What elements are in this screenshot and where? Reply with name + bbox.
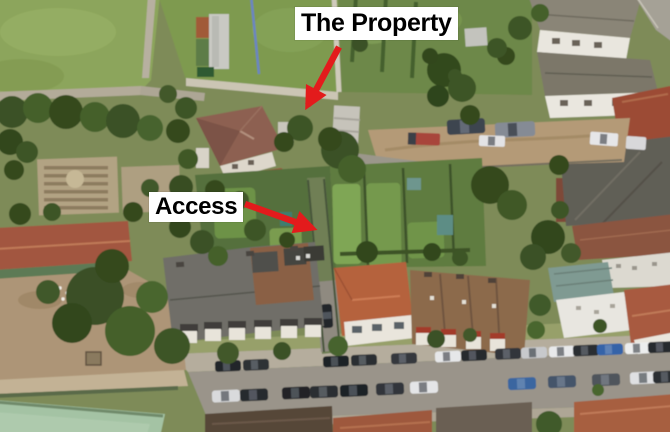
tree <box>105 306 155 356</box>
tree <box>49 95 83 129</box>
tree <box>4 160 24 180</box>
parked-car <box>391 352 417 364</box>
bay-front <box>304 318 322 337</box>
tree <box>16 141 38 163</box>
tree <box>531 4 549 22</box>
tree <box>460 105 480 125</box>
tree <box>175 97 197 119</box>
parked-car <box>625 342 651 354</box>
tree <box>36 280 60 304</box>
tree <box>279 232 295 248</box>
tree <box>273 342 291 360</box>
tree <box>427 330 445 348</box>
tree <box>328 336 348 356</box>
parked-car <box>282 386 310 399</box>
tree <box>80 102 110 132</box>
tree <box>423 243 441 261</box>
tree <box>427 85 449 107</box>
tree <box>487 38 507 58</box>
tree <box>106 104 140 138</box>
teal-greenhouse <box>437 215 453 235</box>
parked-car <box>376 382 404 395</box>
parked-car <box>648 341 670 353</box>
tree <box>497 190 527 220</box>
garden-shed <box>464 27 487 46</box>
parked-car <box>653 370 670 383</box>
parked-car <box>351 354 377 366</box>
tree <box>52 303 92 343</box>
tree <box>137 115 163 141</box>
tree <box>520 244 546 270</box>
parked-car <box>548 375 576 388</box>
tree <box>448 69 462 83</box>
tree <box>422 48 438 64</box>
tree <box>43 203 61 221</box>
tree <box>592 384 604 396</box>
yard-vehicle <box>495 121 536 138</box>
yard-vehicle <box>590 132 619 147</box>
parked-car <box>521 347 547 359</box>
tree <box>244 219 266 241</box>
bay-front <box>280 319 298 338</box>
parked-car <box>597 343 623 355</box>
bay-front <box>490 333 505 351</box>
tree <box>159 85 177 103</box>
hatch <box>86 352 101 365</box>
tree <box>527 321 545 339</box>
parked-car <box>508 377 536 390</box>
aerial-scene <box>0 0 670 432</box>
terraced-houses-west <box>163 242 325 343</box>
tree <box>463 328 477 342</box>
parked-car <box>410 381 438 394</box>
tree <box>356 241 378 263</box>
aerial-photo <box>0 0 670 432</box>
parked-car <box>549 345 575 357</box>
greenhouse-sheds <box>196 14 229 77</box>
parked-car <box>243 359 269 371</box>
tree <box>508 16 532 40</box>
tree <box>23 93 53 123</box>
tree <box>338 155 366 183</box>
tree <box>551 201 569 219</box>
parked-car <box>495 348 521 360</box>
access-label: Access <box>149 192 243 222</box>
tree <box>318 127 342 151</box>
annotated-aerial-map: The Property Access <box>0 0 670 432</box>
parked-car <box>435 350 461 362</box>
parked-car <box>212 389 240 402</box>
tree <box>136 281 168 313</box>
property-label: The Property <box>295 7 458 40</box>
bay-front <box>254 320 272 339</box>
tree <box>549 155 569 175</box>
tree <box>274 132 294 152</box>
red-roof-house <box>334 262 414 346</box>
tree <box>95 249 129 283</box>
teal-shed <box>407 178 421 190</box>
yard-vehicle <box>479 135 505 147</box>
yard-vehicle <box>408 132 440 145</box>
parked-car <box>323 355 349 367</box>
tree <box>178 149 198 169</box>
tree <box>9 203 31 225</box>
tree <box>529 294 551 316</box>
bay-front <box>228 321 246 340</box>
yard-vehicle <box>626 136 647 150</box>
bay-front <box>204 322 222 341</box>
tree <box>166 119 190 143</box>
parked-car <box>573 344 599 356</box>
tree <box>452 250 468 266</box>
parked-car <box>340 384 368 397</box>
tree <box>217 342 239 364</box>
parked-car <box>240 388 268 401</box>
parked-car <box>461 349 487 361</box>
tree <box>593 319 607 333</box>
tree <box>123 202 143 222</box>
parked-car <box>310 385 338 398</box>
tree <box>561 243 581 263</box>
tree <box>208 246 228 266</box>
tree <box>154 328 190 364</box>
